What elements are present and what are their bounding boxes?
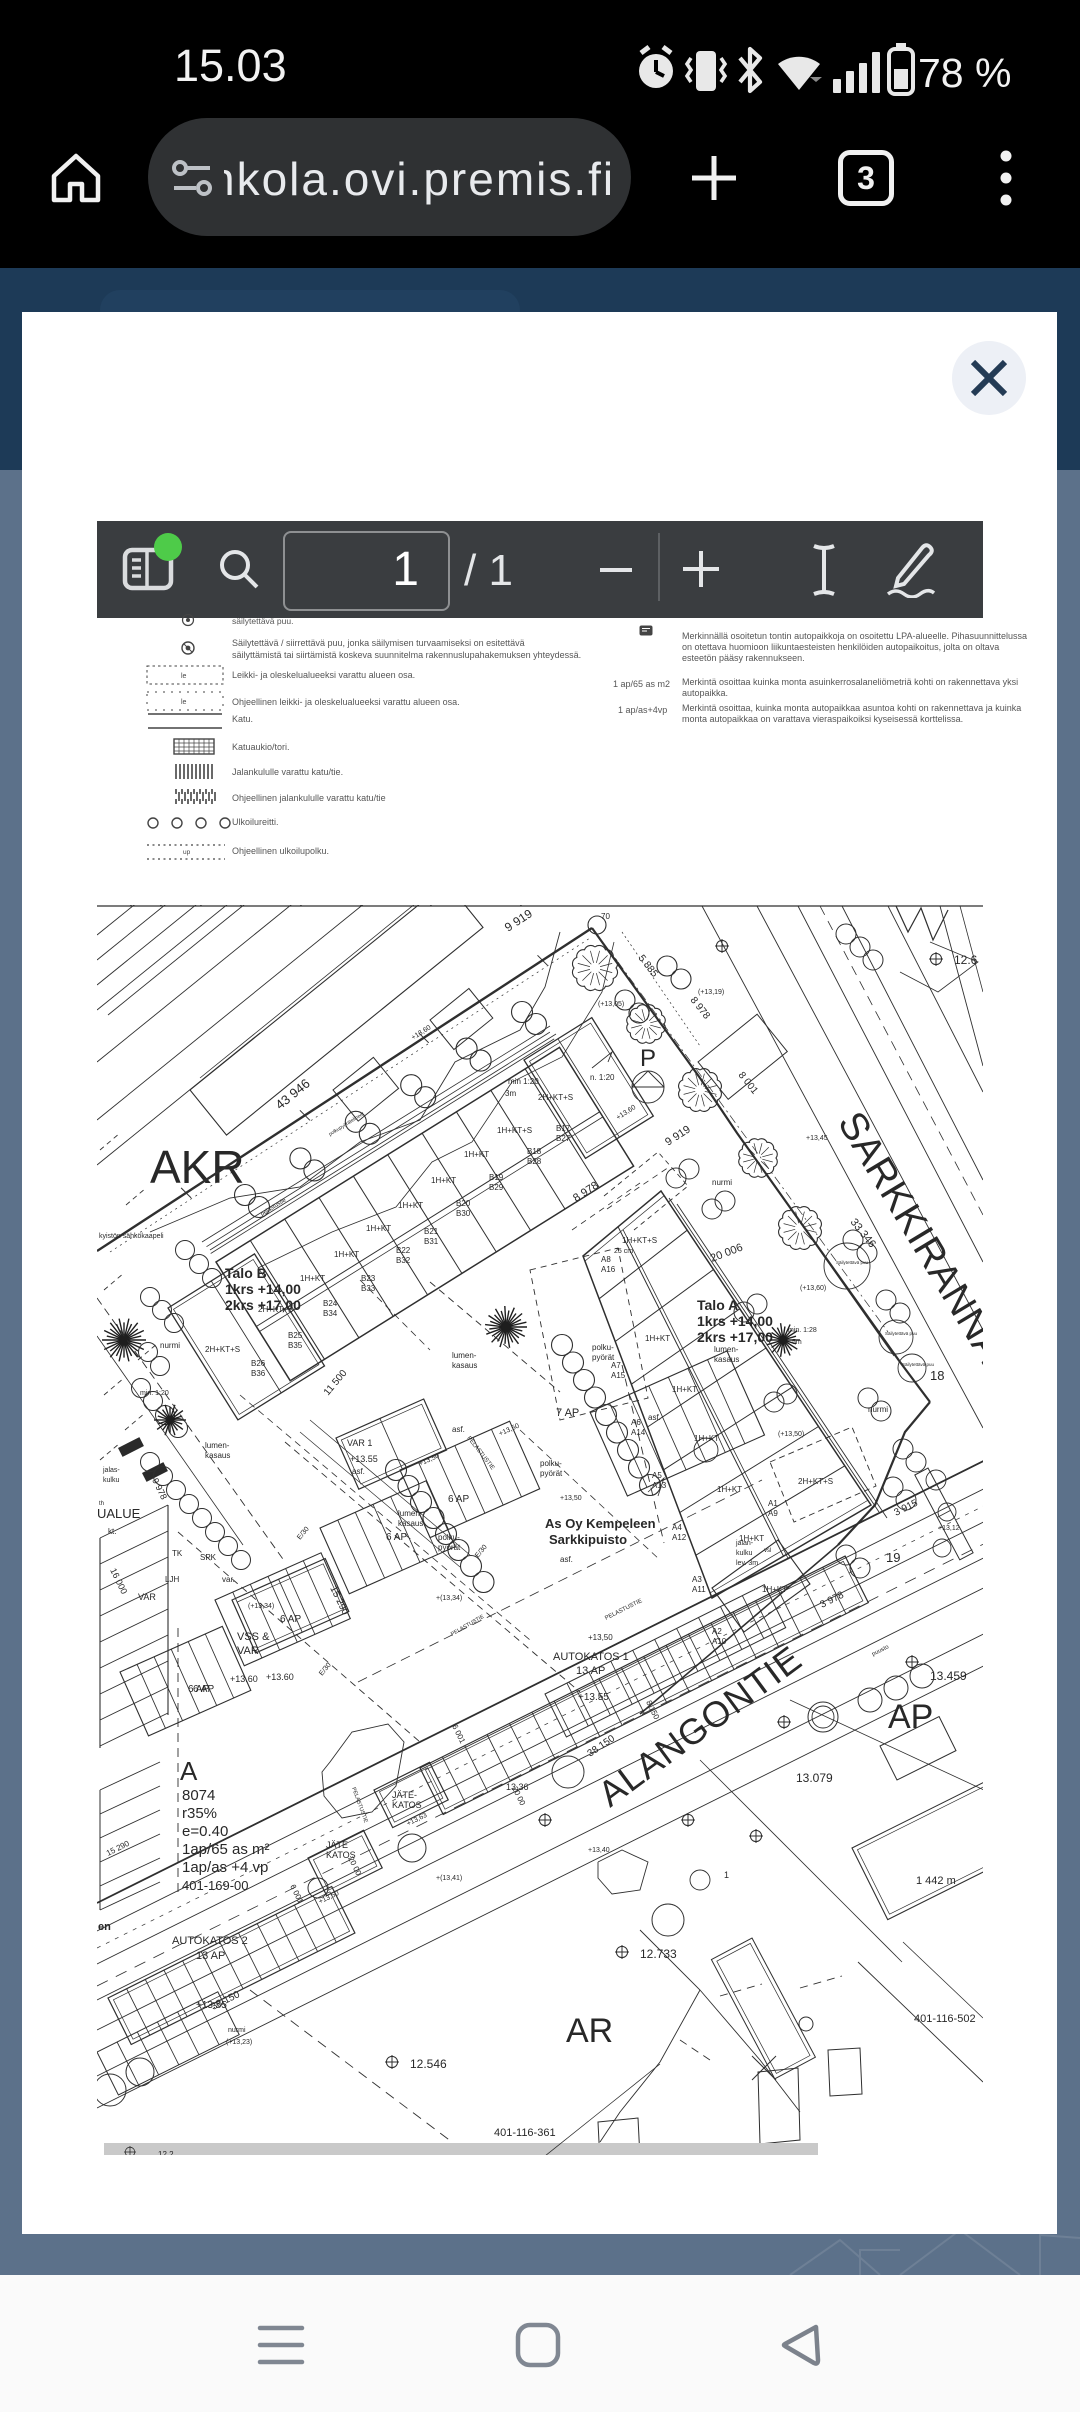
svg-text:asf.: asf. [648, 1413, 661, 1422]
svg-text:+13.55: +13.55 [350, 1454, 378, 1464]
svg-text:11 500: 11 500 [322, 1368, 350, 1398]
svg-text:+13.60: +13.60 [230, 1674, 258, 1684]
svg-text:polkupyörätelineet: polkupyörätelineet [328, 1111, 366, 1138]
svg-text:vsl: vsl [764, 1548, 771, 1554]
svg-text:PELASTUSTIE: PELASTUSTIE [350, 1787, 369, 1824]
svg-text:asf.: asf. [560, 1555, 573, 1564]
svg-text:polku-: polku- [592, 1343, 614, 1352]
svg-text:kasaus: kasaus [398, 1519, 423, 1528]
svg-text:A1: A1 [768, 1499, 778, 1508]
svg-text:B17: B17 [556, 1124, 571, 1133]
svg-text:UALUE: UALUE [97, 1506, 141, 1521]
svg-text:+13,12: +13,12 [938, 1525, 960, 1532]
svg-text:B24: B24 [323, 1299, 338, 1308]
svg-text:6 AP: 6 AP [188, 1684, 209, 1695]
svg-text:9 919: 9 919 [663, 1123, 693, 1148]
svg-text:15 290: 15 290 [105, 1839, 131, 1858]
svg-text:+13,60: +13,60 [615, 1104, 637, 1122]
svg-text:1H+KT: 1H+KT [645, 1334, 670, 1343]
svg-text:LJH: LJH [165, 1575, 179, 1584]
svg-text:le: le [181, 673, 187, 680]
svg-text:B33: B33 [361, 1284, 376, 1293]
svg-text:nurmi: nurmi [868, 1405, 888, 1414]
svg-text:B31: B31 [424, 1237, 439, 1246]
svg-text:PELASTUSTIE: PELASTUSTIE [450, 1614, 486, 1638]
svg-text:(+13,19): (+13,19) [698, 989, 724, 996]
svg-text:A9: A9 [768, 1509, 778, 1518]
svg-text:KATOS: KATOS [392, 1800, 422, 1810]
svg-text:PELASTUSTIE: PELASTUSTIE [604, 1598, 643, 1622]
svg-text:kulku: kulku [103, 1477, 119, 1484]
svg-text:1ap/65 as m²: 1ap/65 as m² [182, 1841, 270, 1858]
svg-text:1H+KT+S: 1H+KT+S [497, 1126, 532, 1135]
svg-text:+13,50: +13,50 [588, 1633, 613, 1642]
svg-text:pyörät: pyörät [540, 1469, 563, 1478]
svg-text:A8: A8 [601, 1255, 611, 1264]
svg-text:B30: B30 [456, 1209, 471, 1218]
svg-text:lumen-: lumen- [452, 1351, 477, 1360]
svg-text:Sarkkipuisto: Sarkkipuisto [549, 1532, 627, 1547]
svg-text:3 915: 3 915 [892, 1497, 920, 1518]
svg-text:5m: 5m [792, 1339, 802, 1346]
svg-text:5 885: 5 885 [636, 953, 660, 980]
svg-text:6 AP: 6 AP [386, 1532, 407, 1543]
svg-text:A11: A11 [692, 1585, 706, 1594]
svg-text:pyörät: pyörät [592, 1353, 615, 1362]
svg-text:VAR: VAR [138, 1592, 156, 1602]
svg-text:var.: var. [222, 1575, 235, 1584]
svg-text:(+13,05): (+13,05) [598, 1001, 624, 1008]
svg-text:A7: A7 [611, 1361, 621, 1370]
svg-text:B18: B18 [527, 1147, 542, 1156]
svg-text:nurmi: nurmi [712, 1178, 732, 1187]
svg-text:A: A [180, 1756, 198, 1786]
svg-text:1: 1 [724, 1870, 729, 1880]
svg-text:e=0.40: e=0.40 [182, 1823, 228, 1840]
svg-text:Talo A: Talo A [697, 1297, 738, 1313]
svg-text:up: up [183, 849, 191, 856]
svg-text:3 978: 3 978 [818, 1589, 846, 1610]
svg-text:A12: A12 [672, 1533, 687, 1542]
svg-text:PELASTUSTIE: PELASTUSTIE [465, 1436, 495, 1472]
svg-text:13.459: 13.459 [930, 1669, 967, 1683]
svg-text:lumen-: lumen- [398, 1509, 423, 1518]
svg-text:6 AP: 6 AP [448, 1494, 469, 1505]
svg-text:1H+KT: 1H+KT [366, 1224, 391, 1233]
svg-text:jalan-: jalan- [735, 1540, 754, 1547]
svg-text:B21: B21 [424, 1227, 439, 1236]
svg-text:kasaus: kasaus [205, 1451, 230, 1460]
svg-text:401-116-502: 401-116-502 [914, 2013, 976, 2025]
svg-text:asf.: asf. [452, 1425, 465, 1434]
svg-text:B19: B19 [489, 1173, 504, 1182]
svg-text:lev. 3m: lev. 3m [736, 1560, 758, 1567]
svg-text:pelastustie: pelastustie [260, 1197, 288, 1218]
svg-text:+(13,41): +(13,41) [436, 1875, 462, 1882]
svg-text:401-116-361: 401-116-361 [494, 2127, 556, 2139]
svg-text:+13,45: +13,45 [806, 1135, 828, 1142]
svg-text:le: le [181, 699, 187, 706]
svg-text:kasaus: kasaus [714, 1355, 739, 1364]
svg-text:+13.60: +13.60 [266, 1672, 294, 1682]
svg-text:B27: B27 [556, 1134, 571, 1143]
svg-text:VSS &: VSS & [237, 1631, 270, 1643]
svg-text:401-169-00: 401-169-00 [182, 1878, 249, 1893]
svg-text:70: 70 [601, 912, 610, 921]
svg-text:kulku: kulku [736, 1550, 752, 1557]
svg-text:min 1:20: min 1:20 [508, 1077, 539, 1086]
svg-text:18: 18 [930, 1368, 944, 1383]
svg-text:B26: B26 [251, 1359, 266, 1368]
svg-text:+13,50: +13,50 [560, 1495, 582, 1502]
svg-text:8074: 8074 [182, 1787, 215, 1804]
svg-text:P: P [640, 1045, 656, 1072]
svg-text:kasaus: kasaus [452, 1361, 477, 1370]
svg-text:polku-: polku- [540, 1459, 562, 1468]
svg-text:+13,50: +13,50 [418, 1453, 441, 1468]
svg-text:puusto: puusto [871, 1644, 890, 1658]
svg-text:B28: B28 [527, 1157, 542, 1166]
svg-text:1 442 m: 1 442 m [916, 1875, 956, 1887]
svg-text:+13,40: +13,40 [588, 1847, 610, 1854]
svg-text:+13,63: +13,63 [406, 1812, 429, 1828]
svg-text:A16: A16 [601, 1265, 616, 1274]
svg-text:ALANGONTIE: ALANGONTIE [590, 1637, 809, 1814]
svg-text:+13.55: +13.55 [578, 1692, 609, 1703]
svg-text:8 001: 8 001 [736, 1070, 760, 1097]
svg-text:E/30: E/30 [318, 1662, 333, 1678]
svg-text:AUTOKATOS 2: AUTOKATOS 2 [172, 1935, 248, 1947]
svg-text:B22: B22 [396, 1246, 411, 1255]
svg-text:min. 1:28: min. 1:28 [788, 1327, 817, 1334]
svg-text:nurmi: nurmi [160, 1341, 180, 1350]
svg-text:12.2: 12.2 [158, 2150, 174, 2155]
svg-text:B20: B20 [456, 1199, 471, 1208]
svg-text:9 919: 9 919 [502, 906, 535, 934]
svg-text:1H+KT: 1H+KT [464, 1150, 489, 1159]
svg-text:(+13,23): (+13,23) [226, 2039, 252, 2046]
svg-text:B34: B34 [323, 1309, 338, 1318]
svg-text:19: 19 [886, 1550, 900, 1565]
svg-text:8 978: 8 978 [688, 995, 712, 1022]
svg-text:2krs +17,00: 2krs +17,00 [225, 1297, 301, 1313]
svg-text:SPK: SPK [200, 1553, 217, 1562]
svg-text:20 006: 20 006 [709, 1242, 745, 1265]
svg-text:1H+KT: 1H+KT [672, 1385, 697, 1394]
svg-text:1H+KT: 1H+KT [431, 1176, 456, 1185]
svg-text:A3: A3 [692, 1575, 702, 1584]
svg-text:1H+KT: 1H+KT [398, 1201, 423, 1210]
svg-text:E/30: E/30 [296, 1526, 311, 1542]
svg-text:13.079: 13.079 [796, 1771, 833, 1785]
svg-text:VAR 1: VAR 1 [347, 1438, 372, 1448]
svg-text:2H+KT+S: 2H+KT+S [538, 1093, 573, 1102]
svg-text:lumen-: lumen- [714, 1345, 739, 1354]
svg-text:(+13,60): (+13,60) [800, 1285, 826, 1292]
svg-text:Säilytettävä puu: Säilytettävä puu [885, 1331, 918, 1336]
svg-text:B32: B32 [396, 1256, 411, 1265]
svg-text:3m: 3m [505, 1089, 516, 1098]
svg-text:1krs +14,00: 1krs +14,00 [225, 1281, 301, 1297]
svg-text:13 AP: 13 AP [196, 1950, 225, 1962]
svg-text:9 978: 9 978 [150, 1476, 169, 1501]
svg-text:12.546: 12.546 [410, 2057, 447, 2071]
svg-text:min. 1:20: min. 1:20 [140, 1390, 169, 1397]
svg-text:E/30: E/30 [474, 1544, 489, 1560]
svg-text:1H+KT: 1H+KT [300, 1274, 325, 1283]
svg-text:kyistön sähkökaapeli: kyistön sähkökaapeli [99, 1233, 164, 1240]
svg-text:As Oy Kempeleen: As Oy Kempeleen [545, 1516, 656, 1531]
svg-text:r35%: r35% [182, 1805, 217, 1822]
svg-text:B35: B35 [288, 1341, 303, 1350]
svg-text:TK: TK [172, 1549, 183, 1558]
svg-text:th: th [99, 1501, 104, 1507]
svg-text:Säilytettävä puu: Säilytettävä puu [902, 1362, 935, 1367]
svg-text:lumen-: lumen- [205, 1441, 230, 1450]
svg-text:1H+KT: 1H+KT [717, 1485, 742, 1494]
svg-text:AR: AR [566, 2012, 613, 2050]
svg-text:B23: B23 [361, 1274, 376, 1283]
svg-text:B29: B29 [489, 1183, 504, 1192]
svg-text:1H+KT: 1H+KT [334, 1250, 359, 1259]
svg-text:1H+KT+S: 1H+KT+S [622, 1236, 657, 1245]
svg-text:VAR: VAR [237, 1645, 259, 1657]
svg-text:jalas-: jalas- [102, 1467, 120, 1474]
svg-text:6 001: 6 001 [288, 1883, 305, 1905]
svg-text:Talo B: Talo B [225, 1265, 267, 1281]
svg-text:1H+KT: 1H+KT [694, 1434, 719, 1443]
svg-text:(+13,50): (+13,50) [778, 1431, 804, 1438]
svg-text:+(13,34): +(13,34) [436, 1595, 462, 1602]
svg-text:B25: B25 [288, 1331, 303, 1340]
svg-text:2H+KT+S: 2H+KT+S [205, 1345, 240, 1354]
svg-text:78 %: 78 % [918, 50, 1011, 96]
svg-text:B36: B36 [251, 1369, 266, 1378]
svg-text:25 cm: 25 cm [614, 1248, 633, 1255]
svg-text:kt.: kt. [108, 1527, 116, 1536]
svg-text:n. 1:20: n. 1:20 [590, 1073, 615, 1082]
svg-text:7 AP: 7 AP [556, 1407, 579, 1419]
svg-text:asf.: asf. [352, 1467, 365, 1476]
svg-text:2H+KT+S: 2H+KT+S [798, 1477, 833, 1486]
svg-text:2krs +17,00: 2krs +17,00 [697, 1329, 773, 1345]
